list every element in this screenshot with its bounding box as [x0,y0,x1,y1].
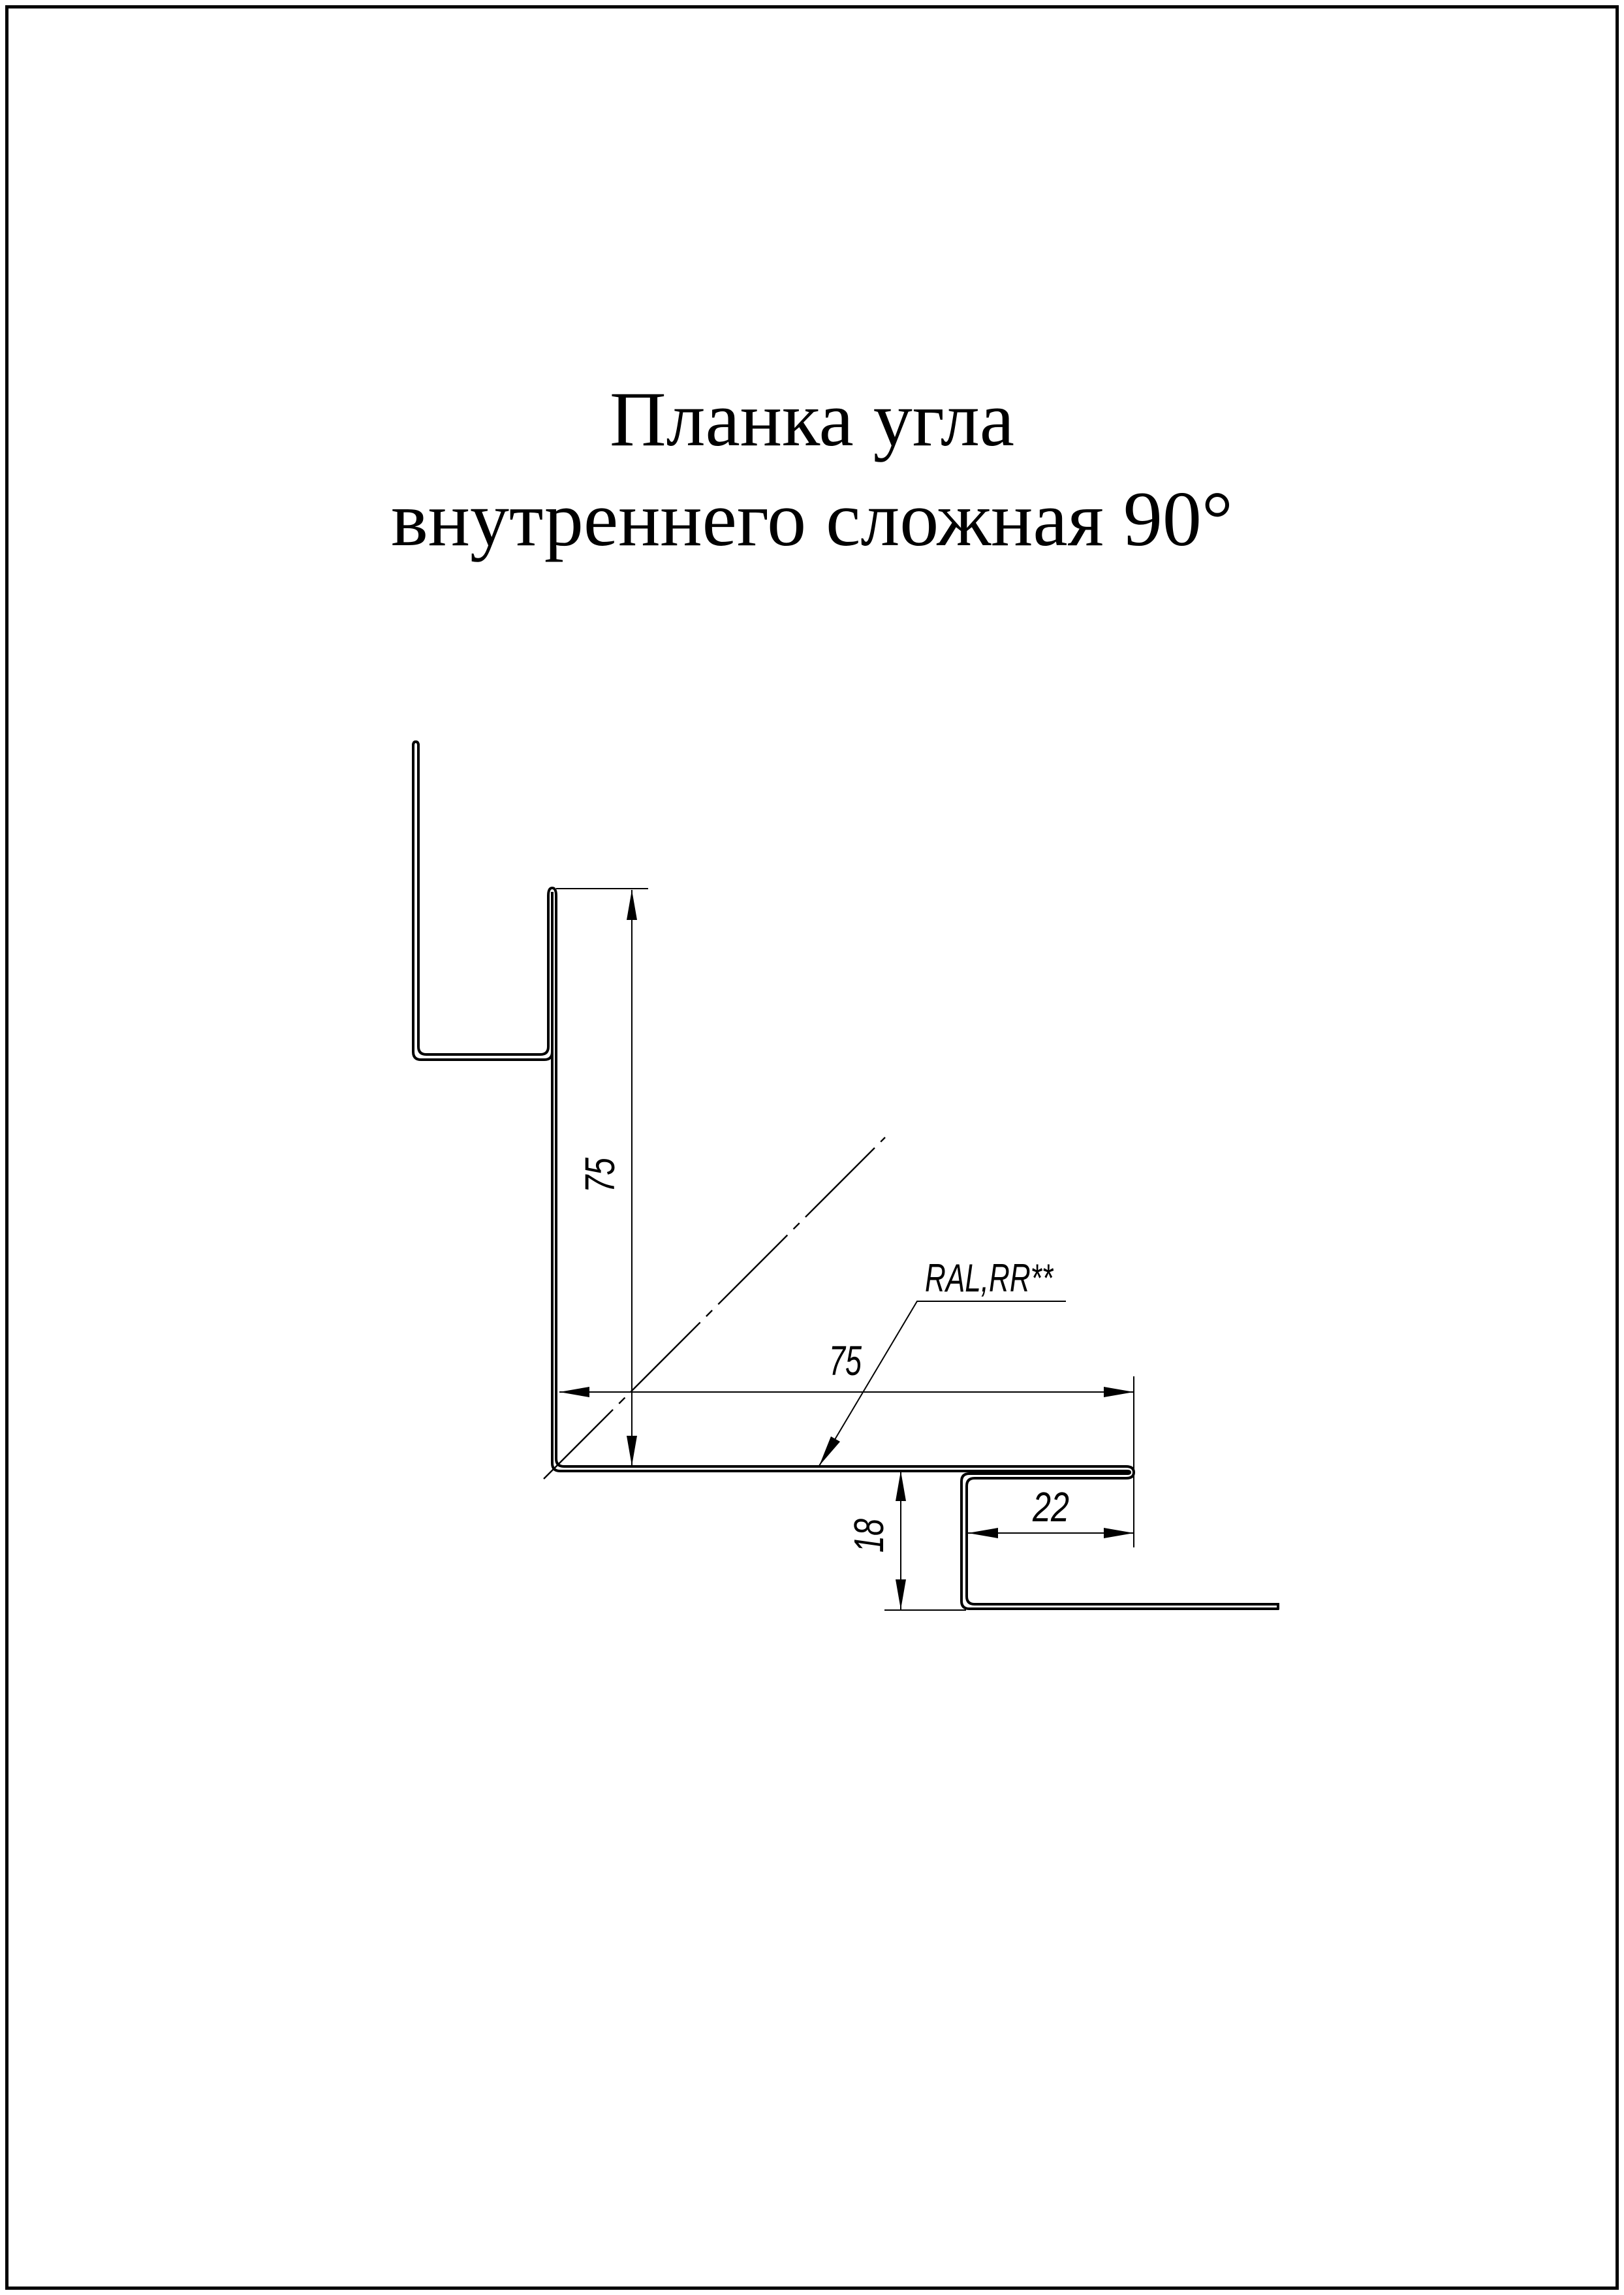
depth-arrow-up [896,1471,906,1501]
flange-arrow-right [1104,1387,1134,1397]
return-arrow-right [1104,1528,1134,1538]
drawing-sheet: Планка угла внутреннего сложная 90° 75 [0,0,1624,2295]
coating-label: RAL,RR** [925,1256,1054,1300]
web-height-value: 75 [576,1158,623,1193]
profile-outline [413,742,1278,1609]
dimension-web-height: 75 [556,889,648,1466]
lip-return-value: 22 [1032,1483,1069,1530]
lip-depth-value: 18 [845,1519,892,1553]
profile-face-inner [418,744,1278,1609]
return-arrow-left [968,1528,998,1538]
depth-arrow-down [896,1579,906,1609]
web-arrow-up [627,890,637,920]
web-arrow-down [627,1436,637,1466]
flange-width-value: 75 [829,1337,862,1384]
dimension-lip-return: 22 [968,1483,1134,1538]
flange-arrow-left [559,1387,589,1397]
profile-top-lip-cap [413,742,418,746]
leader-arrow [819,1436,840,1466]
dimension-lip-depth: 18 [845,1471,966,1610]
profile-drawing: 75 75 22 18 RAL,RR** [0,0,1624,2295]
